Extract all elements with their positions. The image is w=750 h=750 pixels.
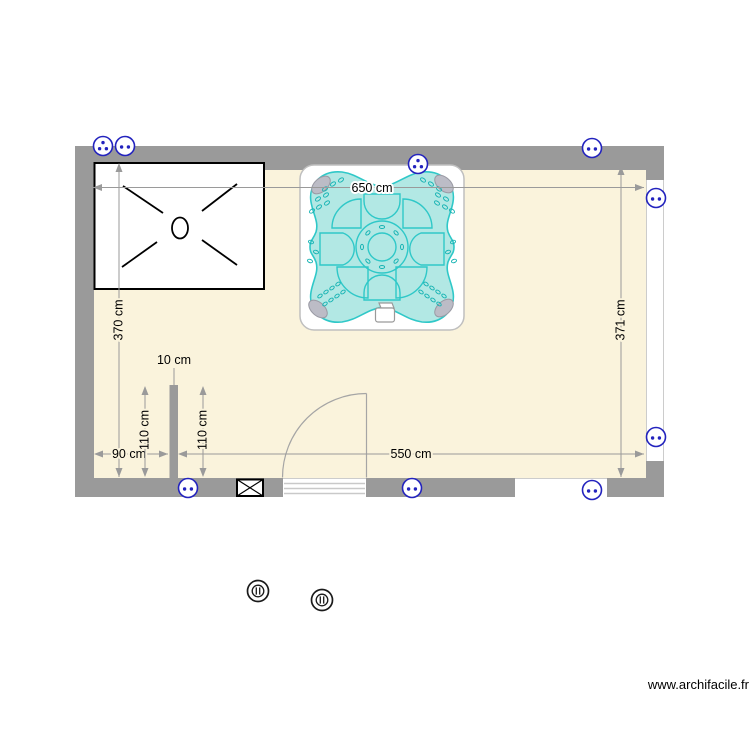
dim-label-370: 370 cm (112, 300, 126, 341)
power-outlet-triple-icon[interactable] (409, 155, 428, 174)
dim-label-371: 371 cm (614, 300, 628, 341)
watermark: www.archifacile.fr (599, 677, 749, 692)
shower-icon[interactable] (95, 163, 265, 289)
power-outlet-double-icon[interactable] (647, 189, 666, 208)
power-outlet-double-icon[interactable] (179, 479, 198, 498)
dim-label-650: 650 cm (352, 181, 393, 195)
power-outlet-double-icon[interactable] (403, 479, 422, 498)
power-outlet-double-icon[interactable] (647, 428, 666, 447)
power-outlet-double-icon[interactable] (583, 139, 602, 158)
dim-label-550: 550 cm (391, 447, 432, 461)
ceiling-light-icon[interactable] (312, 590, 333, 611)
dim-label-10: 10 cm (157, 353, 191, 367)
window-right-wall[interactable] (647, 180, 664, 461)
ceiling-light-icon[interactable] (248, 581, 269, 602)
dim-label-110-right: 110 cm (196, 410, 210, 450)
door-threshold[interactable] (283, 479, 366, 498)
power-outlet-double-icon[interactable] (583, 481, 602, 500)
floor-plan-canvas[interactable]: 650 cm 370 cm 371 cm 90 cm 5 (0, 0, 750, 750)
vent-grille-icon[interactable] (237, 480, 263, 497)
partition-wall[interactable] (170, 385, 179, 478)
power-outlet-double-icon[interactable] (116, 137, 135, 156)
floor-plan-page: 650 cm 370 cm 371 cm 90 cm 5 (0, 0, 750, 750)
power-outlet-triple-icon[interactable] (94, 137, 113, 156)
dim-label-110-left: 110 cm (138, 410, 152, 450)
